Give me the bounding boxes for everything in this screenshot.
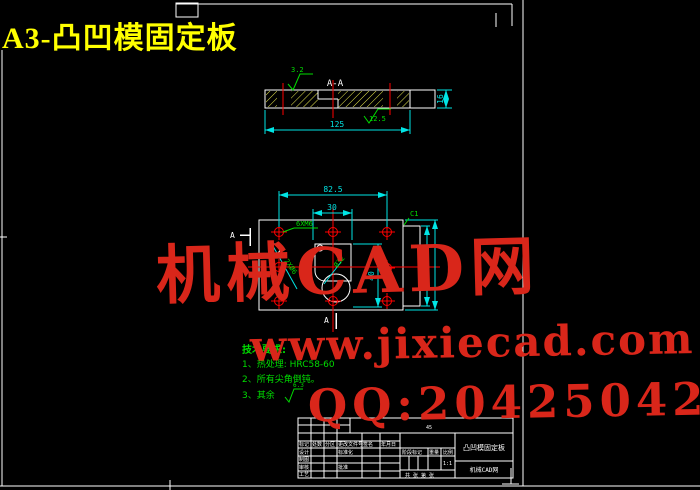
cell-process: 工艺 [299,472,309,478]
roughness-symbol-top [288,74,313,90]
hatch-area [338,91,383,107]
dim-length: 125 [330,120,345,129]
cell-scale: 比例 [443,449,453,456]
cell-scale-value: 1:1 [443,461,452,467]
cell-draft: 制图 [299,456,309,463]
cell-standard: 标准化 [338,449,353,456]
section-label: A-A [327,79,344,89]
roughness-value-top: 3.2 [291,66,304,74]
cell-stage: 阶段标记 [402,449,422,456]
cell-count: 处数 [312,441,322,448]
cell-date: 年月日 [381,441,396,448]
watermark-site-name: 机械CAD网 [155,235,541,309]
cad-drawing-canvas: A-A 3.2 12.5 125 16 [0,0,700,490]
cell-check: 审核 [299,464,309,471]
cell-zone: 分区 [325,441,335,448]
tapped-holes-label: 6XM6 [296,220,313,228]
hatch-area [397,91,409,107]
cell-weight: 重量 [429,449,439,456]
org-name: 机械CAD网 [470,466,499,474]
chamfer-label: C1 [410,210,418,218]
cell-design: 设计 [299,449,309,456]
cell-mark: 标记 [299,441,309,448]
watermark-qq: QQ:20425042 [308,377,700,429]
hatch-area [266,91,277,107]
cell-approve: 批准 [338,464,348,471]
roughness-value-bottom: 12.5 [369,115,386,123]
cell-sign: 签名 [363,441,373,448]
dim-thickness: 16 [436,94,445,104]
section-view: A-A 3.2 12.5 125 16 [265,66,452,134]
dim-slot-width: 30 [327,203,337,212]
hatch-area [291,91,318,107]
roughness-value-general: 6.3 [293,382,304,389]
cell-docno: 更改文件号 [338,441,363,448]
cell-sheet: 共 张 第 张 [405,472,434,479]
part-name: 凸凹模固定板 [463,443,505,452]
tech-requirement-3: 3、其余 [242,388,275,401]
drawing-title: A3-凸凹模固定板 [2,13,238,57]
dim-width: 82.5 [323,185,342,194]
watermark-url: www.jixiecad.com [250,318,695,368]
